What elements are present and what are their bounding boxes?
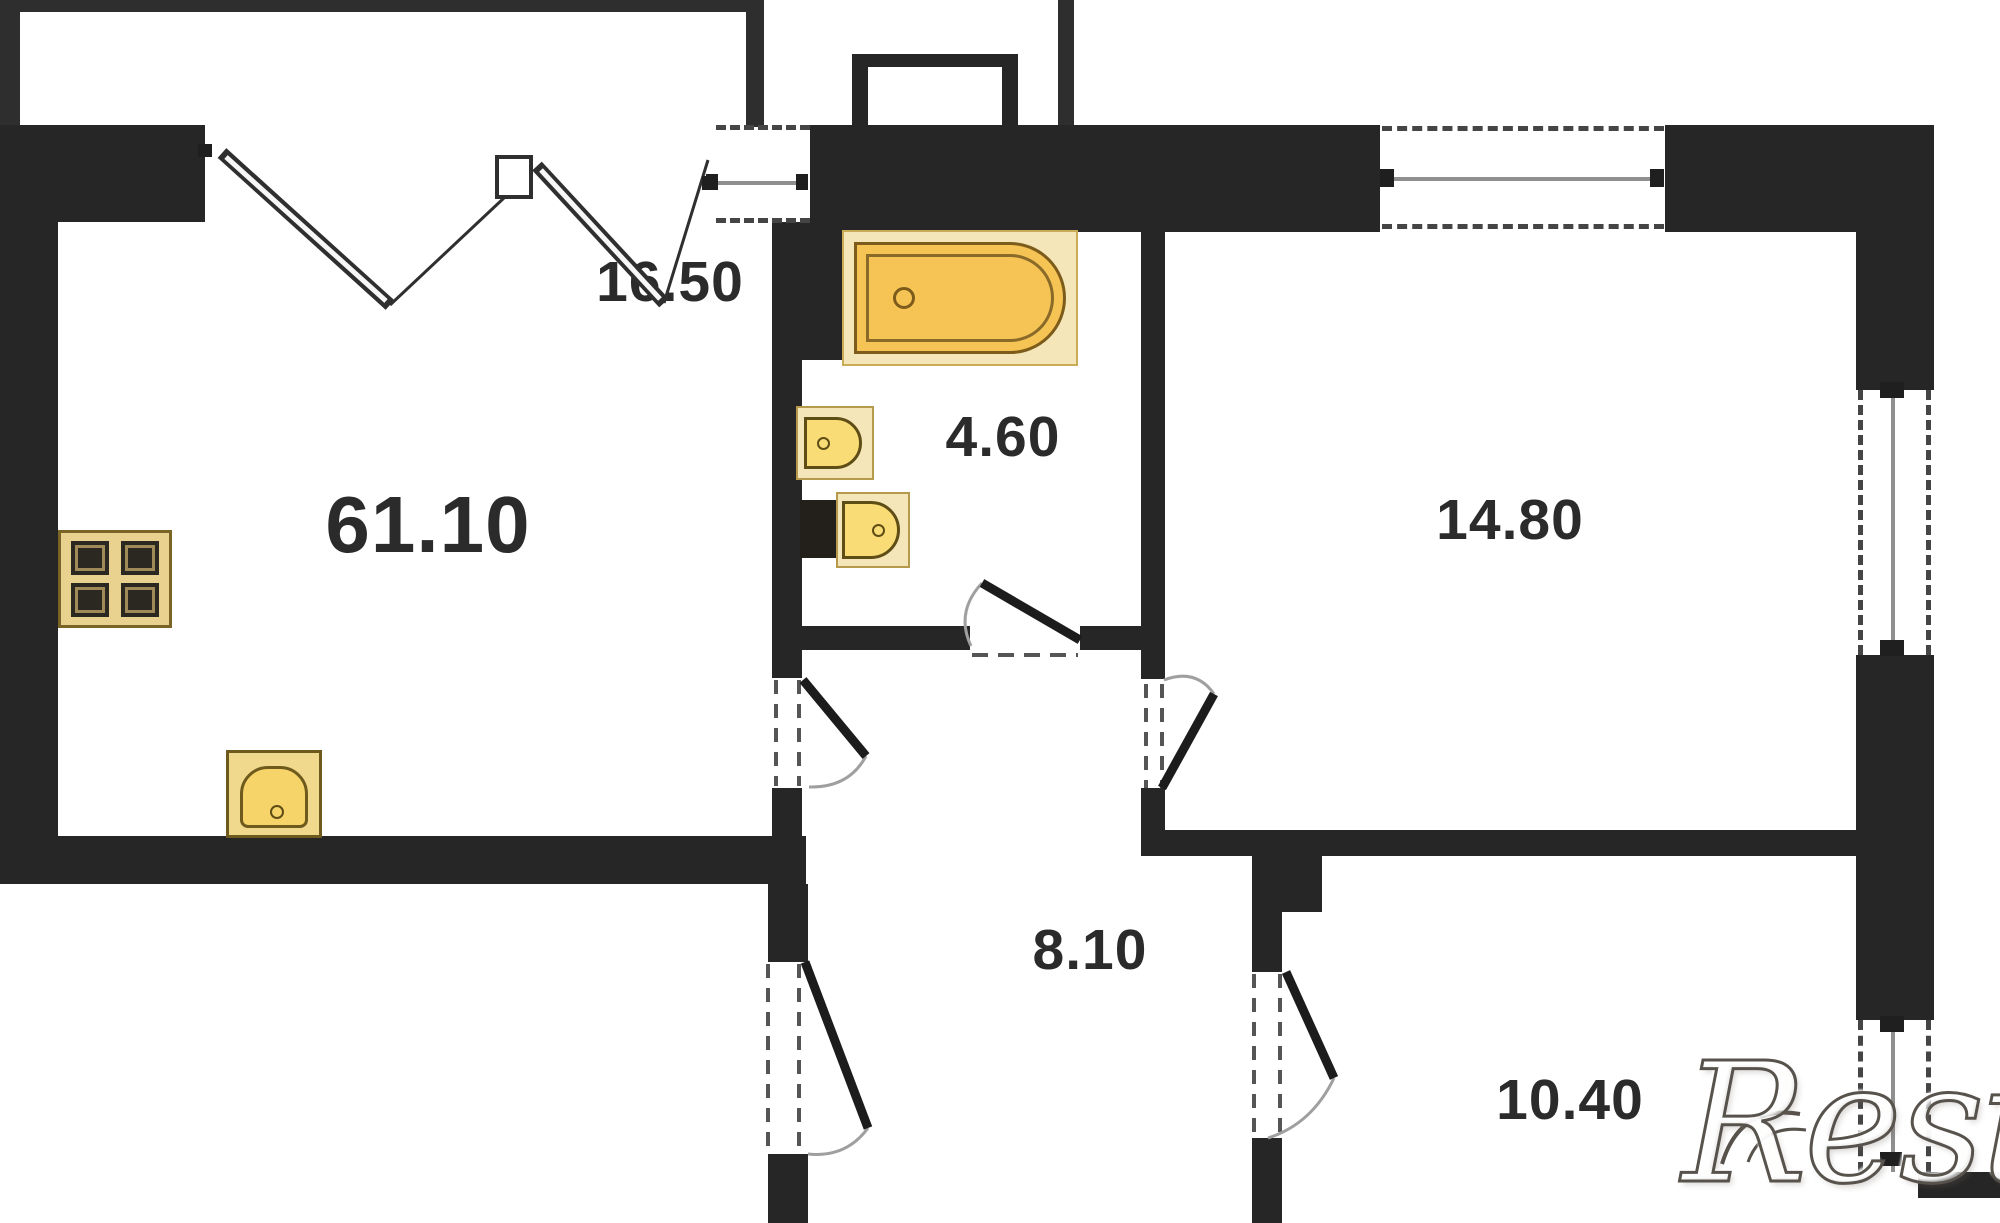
swing-door-bedroom [1146, 676, 1214, 788]
swing-door-kidsroom [1254, 972, 1334, 1138]
swing-door-entrance [768, 962, 868, 1154]
watermark: Restate [1682, 1042, 2000, 1208]
floor-plan: 61.10 16.50 4.60 14.80 8.10 10.40 Restat… [0, 0, 2000, 1223]
swing-door-living [776, 680, 866, 787]
folding-door-icon [198, 144, 716, 305]
swing-door-bathroom [965, 583, 1080, 655]
